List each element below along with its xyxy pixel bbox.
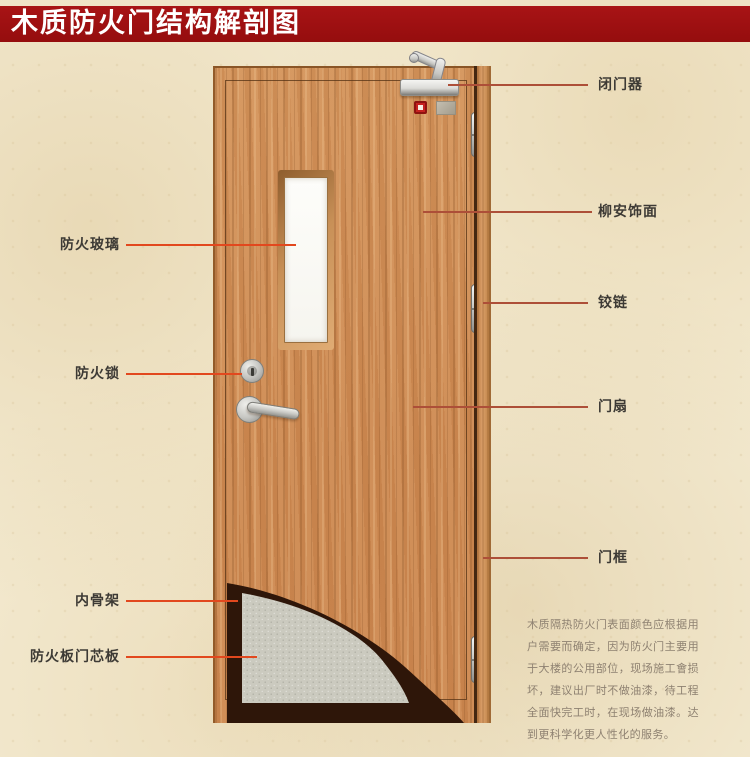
callout-label-door-closer: 闭门器 bbox=[598, 75, 643, 95]
product-description: 木质隔热防火门表面颜色应根据用户需要而确定，因为防火门主要用于大楼的公用部位，现… bbox=[527, 614, 699, 746]
callout-line-inner-skeleton bbox=[126, 600, 238, 602]
callout-label-hinge: 铰链 bbox=[598, 293, 628, 313]
cutaway-section bbox=[210, 555, 495, 730]
callout-label-door-frame: 门框 bbox=[598, 548, 628, 568]
callout-line-fire-lock bbox=[126, 373, 242, 375]
callout-line-hinge bbox=[483, 302, 588, 304]
callout-label-fire-lock: 防火锁 bbox=[28, 364, 120, 384]
door-closer bbox=[400, 79, 459, 96]
page-title: 木质防火门结构解剖图 bbox=[11, 6, 301, 42]
fire-glass-window bbox=[278, 170, 334, 350]
callout-line-veneer bbox=[423, 211, 592, 213]
door-frame-jamb bbox=[477, 66, 491, 723]
fire-rating-label-icon bbox=[414, 101, 427, 114]
callout-line-fire-glass bbox=[126, 244, 296, 246]
callout-label-veneer: 柳安饰面 bbox=[598, 202, 658, 222]
callout-label-fire-glass: 防火玻璃 bbox=[28, 235, 120, 255]
nameplate bbox=[436, 101, 456, 115]
callout-line-door-frame bbox=[483, 557, 588, 559]
diagram-canvas: 防火玻璃 防火锁 内骨架 防火板门芯板 闭门器 柳安饰面 铰链 门扇 门框 木质… bbox=[0, 0, 750, 757]
callout-label-inner-skeleton: 内骨架 bbox=[28, 591, 120, 611]
callout-line-core-board bbox=[126, 656, 257, 658]
callout-line-door-leaf bbox=[413, 406, 588, 408]
glass-pane bbox=[284, 177, 328, 343]
callout-line-door-closer bbox=[448, 84, 588, 86]
callout-label-core-board: 防火板门芯板 bbox=[28, 647, 120, 667]
fire-lock-cylinder bbox=[240, 359, 264, 383]
callout-label-door-leaf: 门扇 bbox=[598, 397, 628, 417]
title-banner: 木质防火门结构解剖图 bbox=[0, 6, 750, 42]
